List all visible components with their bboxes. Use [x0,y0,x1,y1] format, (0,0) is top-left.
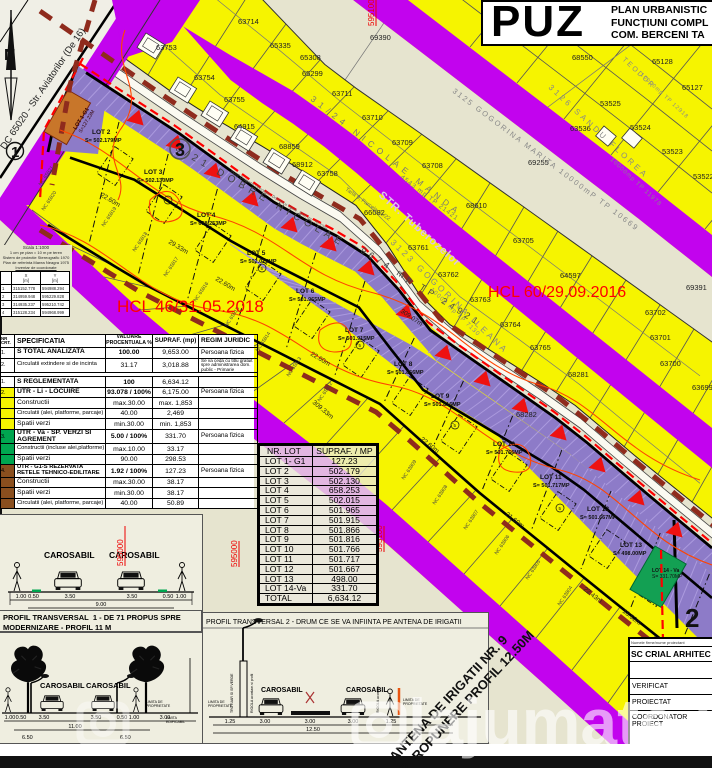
svg-text:RIGOLA acostam.si profil: RIGOLA acostam.si profil [250,673,254,713]
svg-text:S= 502.015MP: S= 502.015MP [240,259,277,265]
svg-text:CAROSABIL: CAROSABIL [44,550,95,560]
svg-text:CAROSABIL: CAROSABIL [40,681,85,690]
svg-text:63705: 63705 [513,236,534,245]
svg-text:68859: 68859 [279,142,300,151]
svg-text:LOT 2: LOT 2 [92,129,111,136]
svg-text:S= 501.766MP: S= 501.766MP [486,450,523,456]
svg-text:0.50: 0.50 [16,715,27,721]
svg-text:9.00: 9.00 [96,602,107,608]
svg-text:S= 498.00MP: S= 498.00MP [613,551,647,557]
svg-text:3: 3 [175,140,185,160]
svg-text:53522: 53522 [693,172,712,181]
svg-text:63764: 63764 [500,320,521,329]
svg-text:64915: 64915 [234,122,255,131]
svg-text:S= 501.816MP: S= 501.816MP [424,402,461,408]
svg-text:CAROSABIL: CAROSABIL [261,687,303,694]
svg-text:63708: 63708 [422,161,443,170]
svg-text:65335: 65335 [270,41,291,50]
svg-text:63754: 63754 [194,73,215,82]
svg-text:64597: 64597 [560,271,581,280]
svg-text:53525: 53525 [600,99,621,108]
svg-text:68281: 68281 [568,370,589,379]
svg-text:3.00: 3.00 [160,715,171,721]
svg-text:3.50: 3.50 [65,594,76,600]
svg-text:HCL 46/31.05.2018: HCL 46/31.05.2018 [117,297,264,316]
svg-text:63699: 63699 [692,383,712,392]
svg-text:LOT 10: LOT 10 [493,441,515,448]
svg-text:63709: 63709 [392,138,413,147]
svg-text:1.25: 1.25 [225,719,236,725]
svg-text:63762: 63762 [438,270,459,279]
svg-text:CAROSABIL: CAROSABIL [86,681,131,690]
svg-text:1: 1 [11,144,19,161]
svg-text:68282: 68282 [516,410,537,419]
svg-text:S= 501.915MP: S= 501.915MP [338,336,375,342]
svg-text:63753: 63753 [156,43,177,52]
svg-text:1.00: 1.00 [5,715,16,721]
svg-text:1.00: 1.00 [16,594,27,600]
svg-text:63765: 63765 [530,343,551,352]
svg-text:LOT 8: LOT 8 [394,361,413,368]
svg-text:63714: 63714 [238,17,259,26]
svg-text:63701: 63701 [650,333,671,342]
svg-text:3.50: 3.50 [39,715,50,721]
svg-text:595000: 595000 [116,539,125,566]
svg-text:63758: 63758 [317,169,338,178]
svg-text:TROTUAR SI SP.VERDE: TROTUAR SI SP.VERDE [230,673,234,713]
svg-text:S= 502.179MP: S= 502.179MP [85,138,122,144]
svg-text:6.50: 6.50 [22,735,33,741]
svg-text:69391: 69391 [686,283,707,292]
svg-text:69390: 69390 [370,33,391,42]
svg-text:63711: 63711 [332,89,352,98]
svg-text:595000: 595000 [230,540,239,567]
svg-text:53524: 53524 [630,123,651,132]
svg-text:3.00: 3.00 [260,719,271,725]
svg-text:S= 502.130MP: S= 502.130MP [137,178,174,184]
svg-text:LOT 6: LOT 6 [296,288,315,295]
svg-text:LOT 7: LOT 7 [345,327,364,334]
svg-text:LOT 3: LOT 3 [144,169,163,176]
svg-text:0.50: 0.50 [163,594,174,600]
svg-text:LOT 11: LOT 11 [540,474,562,481]
svg-text:S= 658.253MP: S= 658.253MP [190,221,227,227]
svg-text:S= 331.70MP: S= 331.70MP [652,574,683,580]
svg-text:1.00: 1.00 [176,594,187,600]
svg-text:65308: 65308 [300,53,321,62]
svg-text:N: N [4,47,16,64]
svg-text:LOT 13: LOT 13 [620,542,642,549]
svg-text:S= 501.667MP: S= 501.667MP [580,515,617,521]
svg-text:63700: 63700 [660,359,681,368]
svg-text:LOT 9: LOT 9 [431,393,450,400]
svg-text:3.00: 3.00 [305,719,316,725]
svg-text:12.50: 12.50 [306,727,320,733]
svg-text:63755: 63755 [224,95,245,104]
svg-text:0.50: 0.50 [28,594,39,600]
svg-text:53523: 53523 [662,147,683,156]
svg-text:LOT 5: LOT 5 [247,250,266,257]
svg-text:63702: 63702 [645,308,666,317]
svg-text:PROPRIETATE: PROPRIETATE [146,704,171,708]
svg-text:68912: 68912 [292,160,313,169]
svg-text:68550: 68550 [572,53,593,62]
svg-text:LOT 4: LOT 4 [197,212,216,219]
svg-text:S= 501.965MP: S= 501.965MP [289,297,326,303]
svg-text:2: 2 [685,603,699,633]
svg-text:63761: 63761 [408,243,429,252]
svg-text:HCL 60/29.09.2016: HCL 60/29.09.2016 [488,284,626,301]
svg-text:65127: 65127 [682,83,703,92]
svg-text:68610: 68610 [466,201,487,210]
svg-text:63710: 63710 [362,113,383,122]
svg-text:595100: 595100 [367,0,376,26]
svg-text:S= 501.866MP: S= 501.866MP [387,370,424,376]
svg-text:65128: 65128 [652,57,673,66]
svg-text:S= 501.717MP: S= 501.717MP [533,483,570,489]
svg-text:3.50: 3.50 [127,594,138,600]
svg-text:LOT 12: LOT 12 [587,506,609,513]
svg-text:65299: 65299 [302,69,323,78]
